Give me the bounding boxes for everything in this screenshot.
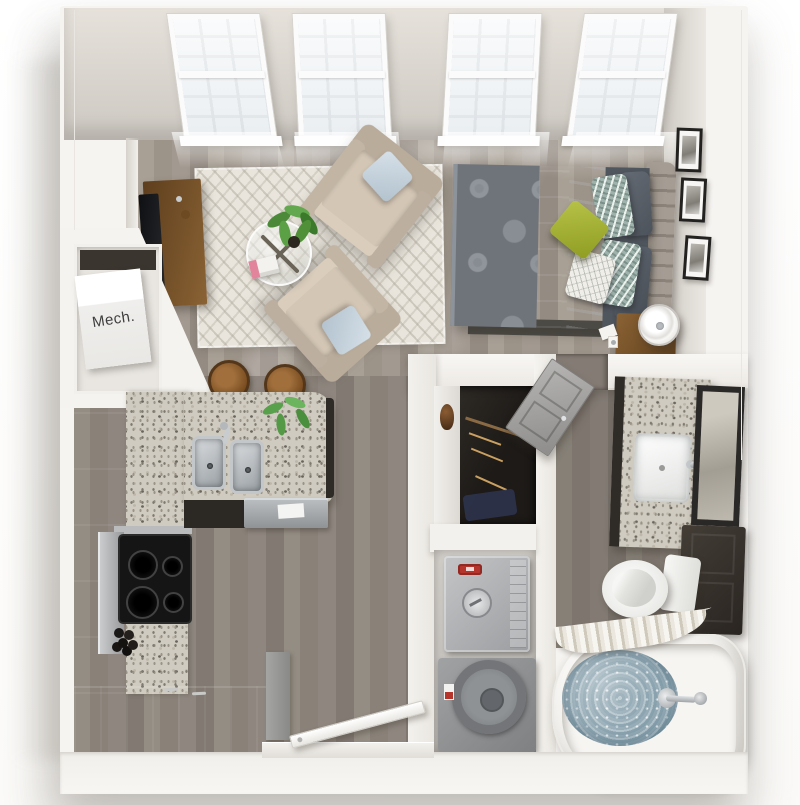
window-1 [167, 14, 277, 140]
window-sash-rail [299, 71, 385, 78]
washer-dial [462, 588, 492, 618]
decor-spheres-bowl [114, 628, 124, 638]
cooktop [120, 536, 190, 622]
washer-button-slit [466, 567, 474, 571]
window-sill [179, 136, 282, 146]
mech-closet-shadow [80, 250, 156, 270]
window-4 [567, 14, 677, 140]
kitchen-faucet-head [220, 422, 228, 430]
exterior-wall-bottom [60, 752, 748, 794]
closet-vase [440, 404, 454, 430]
wall-art-frame-2 [679, 177, 707, 222]
exterior-shadow [14, 60, 66, 760]
floor-plan-stage: Mech. [0, 0, 800, 805]
cabinet-handle [164, 688, 178, 691]
closet-hanger [469, 432, 502, 446]
left-wall-face [126, 138, 140, 230]
wall-seam [74, 10, 75, 230]
tub-faucet-handle [694, 692, 707, 705]
sink-drain [659, 465, 665, 471]
window-3 [443, 14, 542, 140]
island-dark-edge [326, 398, 334, 498]
closet-hanger [471, 448, 503, 463]
window-sash-rail [579, 71, 666, 78]
wall-art-image [689, 244, 705, 273]
wall-hook [608, 336, 618, 348]
window-sash-rail [178, 71, 265, 78]
sink-basin-left [192, 436, 226, 490]
wall-seam [741, 10, 742, 460]
entry-threshold [262, 742, 434, 758]
washer [444, 556, 530, 652]
washer-control-panel [510, 560, 526, 648]
vanity-sink [633, 433, 691, 503]
island-cabinet-base [184, 500, 248, 528]
sink-drain [245, 467, 251, 473]
closet-storage-bin [462, 489, 517, 522]
toilet-seat [612, 569, 656, 607]
wall-art-image [682, 136, 697, 164]
mech-label: Mech. [90, 307, 135, 330]
closet-hanger [475, 475, 507, 491]
closet-laundry-divider-wall [430, 524, 536, 552]
wall-art-frame-1 [675, 128, 703, 173]
table-lamp [638, 304, 680, 346]
burner [128, 550, 158, 580]
vanity-mirror [691, 385, 745, 527]
window-sill [437, 136, 540, 146]
duvet-plain [536, 166, 569, 329]
dryer-label-red [445, 692, 453, 699]
entry-door-knob [297, 737, 303, 743]
dishwasher [244, 498, 328, 528]
breakfast-counter [74, 686, 266, 756]
console-decor-chrome [176, 196, 182, 202]
burner [163, 592, 184, 613]
dryer [438, 658, 536, 752]
door-panel [519, 400, 563, 442]
bed [450, 164, 649, 330]
door-panel [539, 370, 583, 412]
window-sill [561, 136, 664, 146]
burner [162, 556, 183, 577]
wall-art-frame-3 [682, 235, 711, 281]
dryer-door-center [480, 688, 504, 712]
sink-drain [207, 463, 213, 469]
duvet-patterned [450, 164, 539, 328]
plant-pot [288, 236, 300, 248]
window-2 [293, 14, 392, 140]
console-decor-wood [181, 210, 190, 219]
dryer-label [444, 684, 454, 700]
mech-unit: Mech. [75, 268, 152, 369]
lamp-finial [656, 322, 664, 330]
dish-towel [278, 503, 305, 519]
wall-art-image [685, 186, 700, 215]
wall-hook-pin [611, 340, 616, 345]
cabinet-handle [192, 692, 206, 695]
washer-dial-pointer [469, 598, 482, 607]
interior-wall-vertical-left [408, 354, 436, 756]
washer-power-button [458, 564, 482, 575]
range-control-panel [114, 526, 192, 534]
cabinet-end-panel [266, 652, 290, 740]
burner [126, 586, 159, 619]
sink-basin-right [230, 440, 264, 494]
window-sash-rail [449, 71, 535, 78]
